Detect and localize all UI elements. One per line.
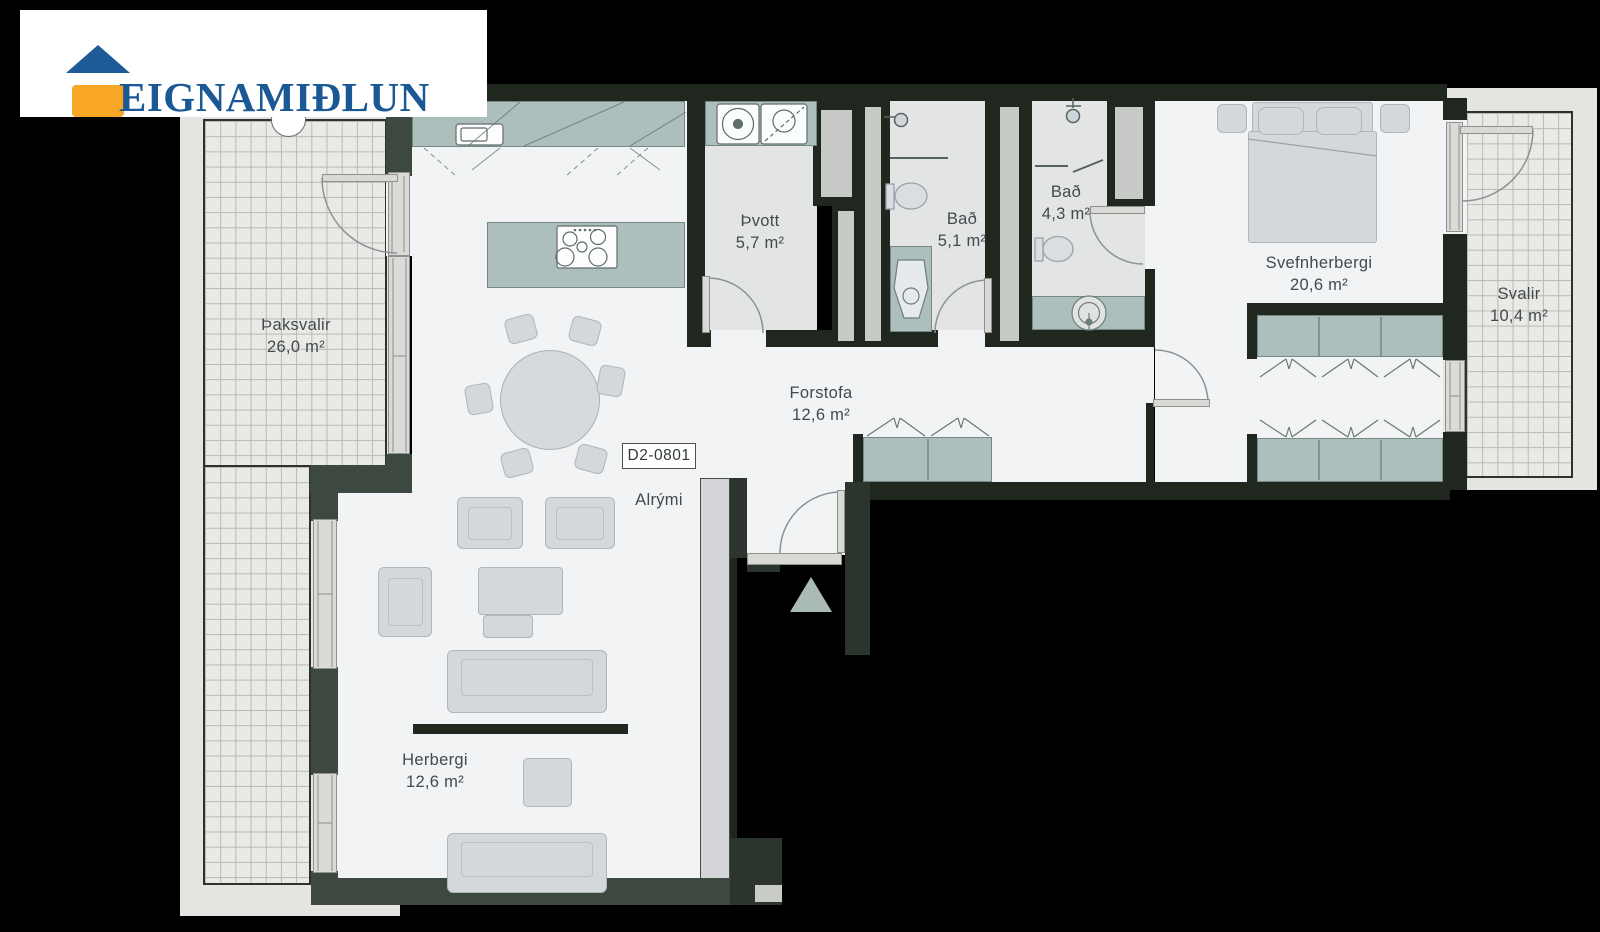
room-label-alrymi: Alrými [635, 490, 683, 512]
room-label-bath-large: Bað5,1 m² [938, 209, 987, 253]
wall-east-b [1443, 234, 1467, 360]
unit-number-badge: D2-0801 [622, 443, 696, 469]
coffee-table-ext [483, 615, 533, 638]
entry-closet [863, 437, 992, 482]
wall-bath-small-stub [1145, 269, 1155, 347]
floor-bedroom-doorway [1146, 347, 1154, 405]
wall-step [310, 465, 412, 493]
armchair [378, 567, 432, 637]
room-label-svalir: Svalir10,4 m² [1490, 284, 1548, 328]
herbergi-window-1 [313, 519, 337, 669]
nightstand [1217, 104, 1247, 133]
laundry-counter [705, 101, 817, 146]
shaft-4 [999, 106, 1020, 342]
wardrobe-upper [1257, 315, 1443, 357]
wall-west-b [311, 667, 338, 775]
roof-terrace-tiles-lower [203, 465, 311, 885]
nightstand [1380, 104, 1410, 133]
pillow [1258, 107, 1304, 135]
side-table [523, 758, 572, 807]
entrance-threshold [747, 553, 842, 565]
bath-large-door-leaf [984, 278, 992, 333]
logo-house-roof-icon [66, 45, 130, 73]
shaft-3 [864, 106, 882, 342]
terrace-door-frame [388, 172, 410, 256]
balcony-door-frame [1446, 122, 1463, 232]
wall-east-a [1443, 98, 1467, 120]
doorway-thvott [711, 330, 766, 347]
bedroom-door-leaf [1153, 399, 1210, 407]
wall-closet-stub [853, 434, 863, 482]
vanity-bath-large [890, 246, 932, 332]
wall-bedroom-stub-2 [1247, 434, 1257, 482]
roof-terrace-tiles-upper [203, 119, 387, 467]
glass-partition [700, 478, 730, 893]
room-label-herbergi: Herbergi12,6 m² [402, 750, 468, 794]
wall-bedroom-inner [1247, 303, 1443, 315]
media-wall-divider [413, 724, 628, 734]
wall-entrance-left [730, 478, 747, 558]
room-label-thaksvalir: Þaksvalir26,0 m² [261, 315, 331, 359]
wall-entrance-right [845, 482, 870, 655]
bath-small-door-leaf [1090, 206, 1145, 214]
dining-chair [464, 382, 495, 416]
wall-bedroom-stub-1 [1247, 303, 1257, 359]
wall-corridor-bottom [845, 482, 1450, 500]
coffee-table [478, 567, 563, 615]
room-label-forstofa: Forstofa12,6 m² [790, 383, 853, 427]
wall-partition-edge [730, 558, 737, 878]
wardrobe-lower [1257, 438, 1443, 482]
sofa [447, 833, 607, 893]
floor-bath-nook [1145, 205, 1155, 269]
shaft-1 [820, 109, 853, 198]
armchair [545, 497, 615, 549]
armchair [457, 497, 523, 549]
herbergi-window-2 [313, 773, 337, 873]
balcony-door-leaf [1460, 126, 1533, 134]
entrance-door-leaf [837, 490, 845, 553]
kitchen-island [487, 222, 685, 288]
dining-chair [596, 364, 627, 398]
entrance-arrow [790, 577, 832, 612]
agency-logo: EIGNAMIÐLUN [20, 10, 487, 117]
thvott-door-leaf [702, 276, 710, 333]
bedroom-window [1445, 360, 1465, 432]
sofa [447, 650, 607, 713]
dining-table [500, 350, 600, 450]
pillow [1316, 107, 1362, 135]
doorway-bath-large [938, 330, 990, 347]
vanity-bath-small [1032, 296, 1145, 330]
shaft-5 [1114, 106, 1144, 200]
terrace-door-leaf [322, 174, 398, 182]
kitchen-window [388, 256, 410, 454]
room-label-thvott: Þvott5,7 m² [736, 211, 785, 255]
wall-corner-notch [755, 885, 782, 902]
logo-house-body-icon [72, 85, 124, 117]
room-label-svefnherbergi: Svefnherbergi20,6 m² [1266, 253, 1373, 297]
bed [1248, 131, 1377, 243]
floorplan-canvas: Þaksvalir26,0 m² Þvott5,7 m² Bað5,1 m² B… [0, 0, 1600, 932]
wall-top [386, 84, 1447, 101]
wall-corridor-end [1146, 403, 1154, 482]
wall-west-a [311, 491, 338, 521]
floor-entrance-recess [747, 478, 845, 555]
shaft-2 [837, 210, 855, 342]
room-label-bath-small: Bað4,3 m² [1042, 182, 1091, 226]
logo-wordmark: EIGNAMIÐLUN [119, 77, 430, 118]
